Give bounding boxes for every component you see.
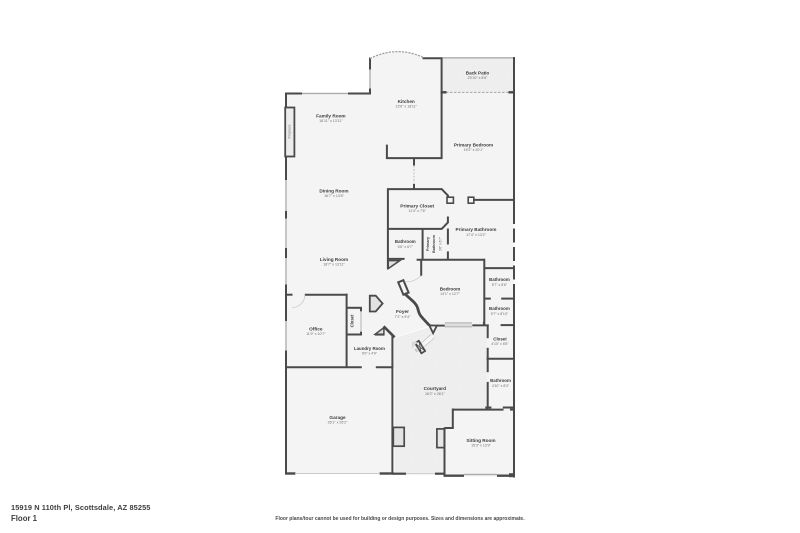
svg-text:5'7" x 5'6": 5'7" x 5'6" — [492, 283, 508, 287]
svg-text:11'4" x 7'6": 11'4" x 7'6" — [408, 209, 426, 213]
svg-text:4'10" x 6'5": 4'10" x 6'5" — [491, 342, 509, 346]
svg-text:13'6" x 18'11": 13'6" x 18'11" — [395, 104, 417, 108]
svg-text:6'6" x 6'7": 6'6" x 6'7" — [398, 245, 414, 249]
svg-text:17'4" x 13'2": 17'4" x 13'2" — [466, 233, 486, 237]
svg-text:18'7" x 13'11": 18'7" x 13'11" — [323, 263, 345, 267]
svg-text:Laundry Room: Laundry Room — [354, 346, 385, 351]
svg-text:11'9" x 10'7": 11'9" x 10'7" — [306, 332, 326, 336]
svg-text:Bedroom: Bedroom — [440, 287, 461, 292]
svg-text:19'2" x 20'1": 19'2" x 20'1" — [464, 148, 484, 152]
svg-text:Closet: Closet — [350, 314, 355, 327]
svg-text:16'7" x 13'8": 16'7" x 13'8" — [324, 194, 344, 198]
svg-text:Closet: Closet — [493, 337, 507, 342]
svg-text:Primary: Primary — [426, 236, 430, 251]
svg-text:Bathroom: Bathroom — [490, 378, 511, 383]
svg-text:Fireplace: Fireplace — [287, 124, 291, 138]
svg-text:Kitchen: Kitchen — [398, 99, 415, 104]
svg-text:14'1" x 12'7": 14'1" x 12'7" — [440, 292, 460, 296]
svg-text:16'11" x 13'11": 16'11" x 13'11" — [319, 119, 343, 123]
svg-text:3'6" x 6'7": 3'6" x 6'7" — [439, 237, 443, 251]
svg-text:Bathroom: Bathroom — [489, 277, 510, 282]
svg-text:Family Room: Family Room — [316, 114, 345, 119]
svg-text:16'2" x 26'1": 16'2" x 26'1" — [425, 392, 445, 396]
svg-text:Primary Bedroom: Primary Bedroom — [454, 143, 493, 148]
svg-text:9'9" x 4'9": 9'9" x 4'9" — [362, 351, 378, 355]
svg-text:Garage: Garage — [329, 415, 346, 420]
svg-text:Living Room: Living Room — [320, 257, 348, 262]
svg-text:23'10" x 8'8": 23'10" x 8'8" — [468, 76, 488, 80]
svg-text:5'7" x 8'10": 5'7" x 8'10" — [491, 312, 509, 316]
svg-text:7'2" x 9'4": 7'2" x 9'4" — [395, 315, 411, 319]
svg-text:15'3" x 13'9": 15'3" x 13'9" — [471, 444, 491, 448]
svg-text:Bathroom: Bathroom — [432, 234, 436, 253]
svg-text:Dining Room: Dining Room — [319, 189, 348, 194]
svg-text:26'1" x 26'2": 26'1" x 26'2" — [328, 421, 348, 425]
svg-text:Back Patio: Back Patio — [466, 71, 490, 76]
svg-text:Bathroom: Bathroom — [395, 239, 416, 244]
svg-text:Primary Bathroom: Primary Bathroom — [456, 227, 497, 232]
svg-text:4'10" x 8'3": 4'10" x 8'3" — [492, 384, 510, 388]
svg-text:Bathroom: Bathroom — [489, 306, 510, 311]
svg-text:Sitting Room: Sitting Room — [466, 438, 495, 443]
svg-text:Courtyard: Courtyard — [424, 386, 447, 391]
svg-text:Office: Office — [309, 326, 323, 331]
